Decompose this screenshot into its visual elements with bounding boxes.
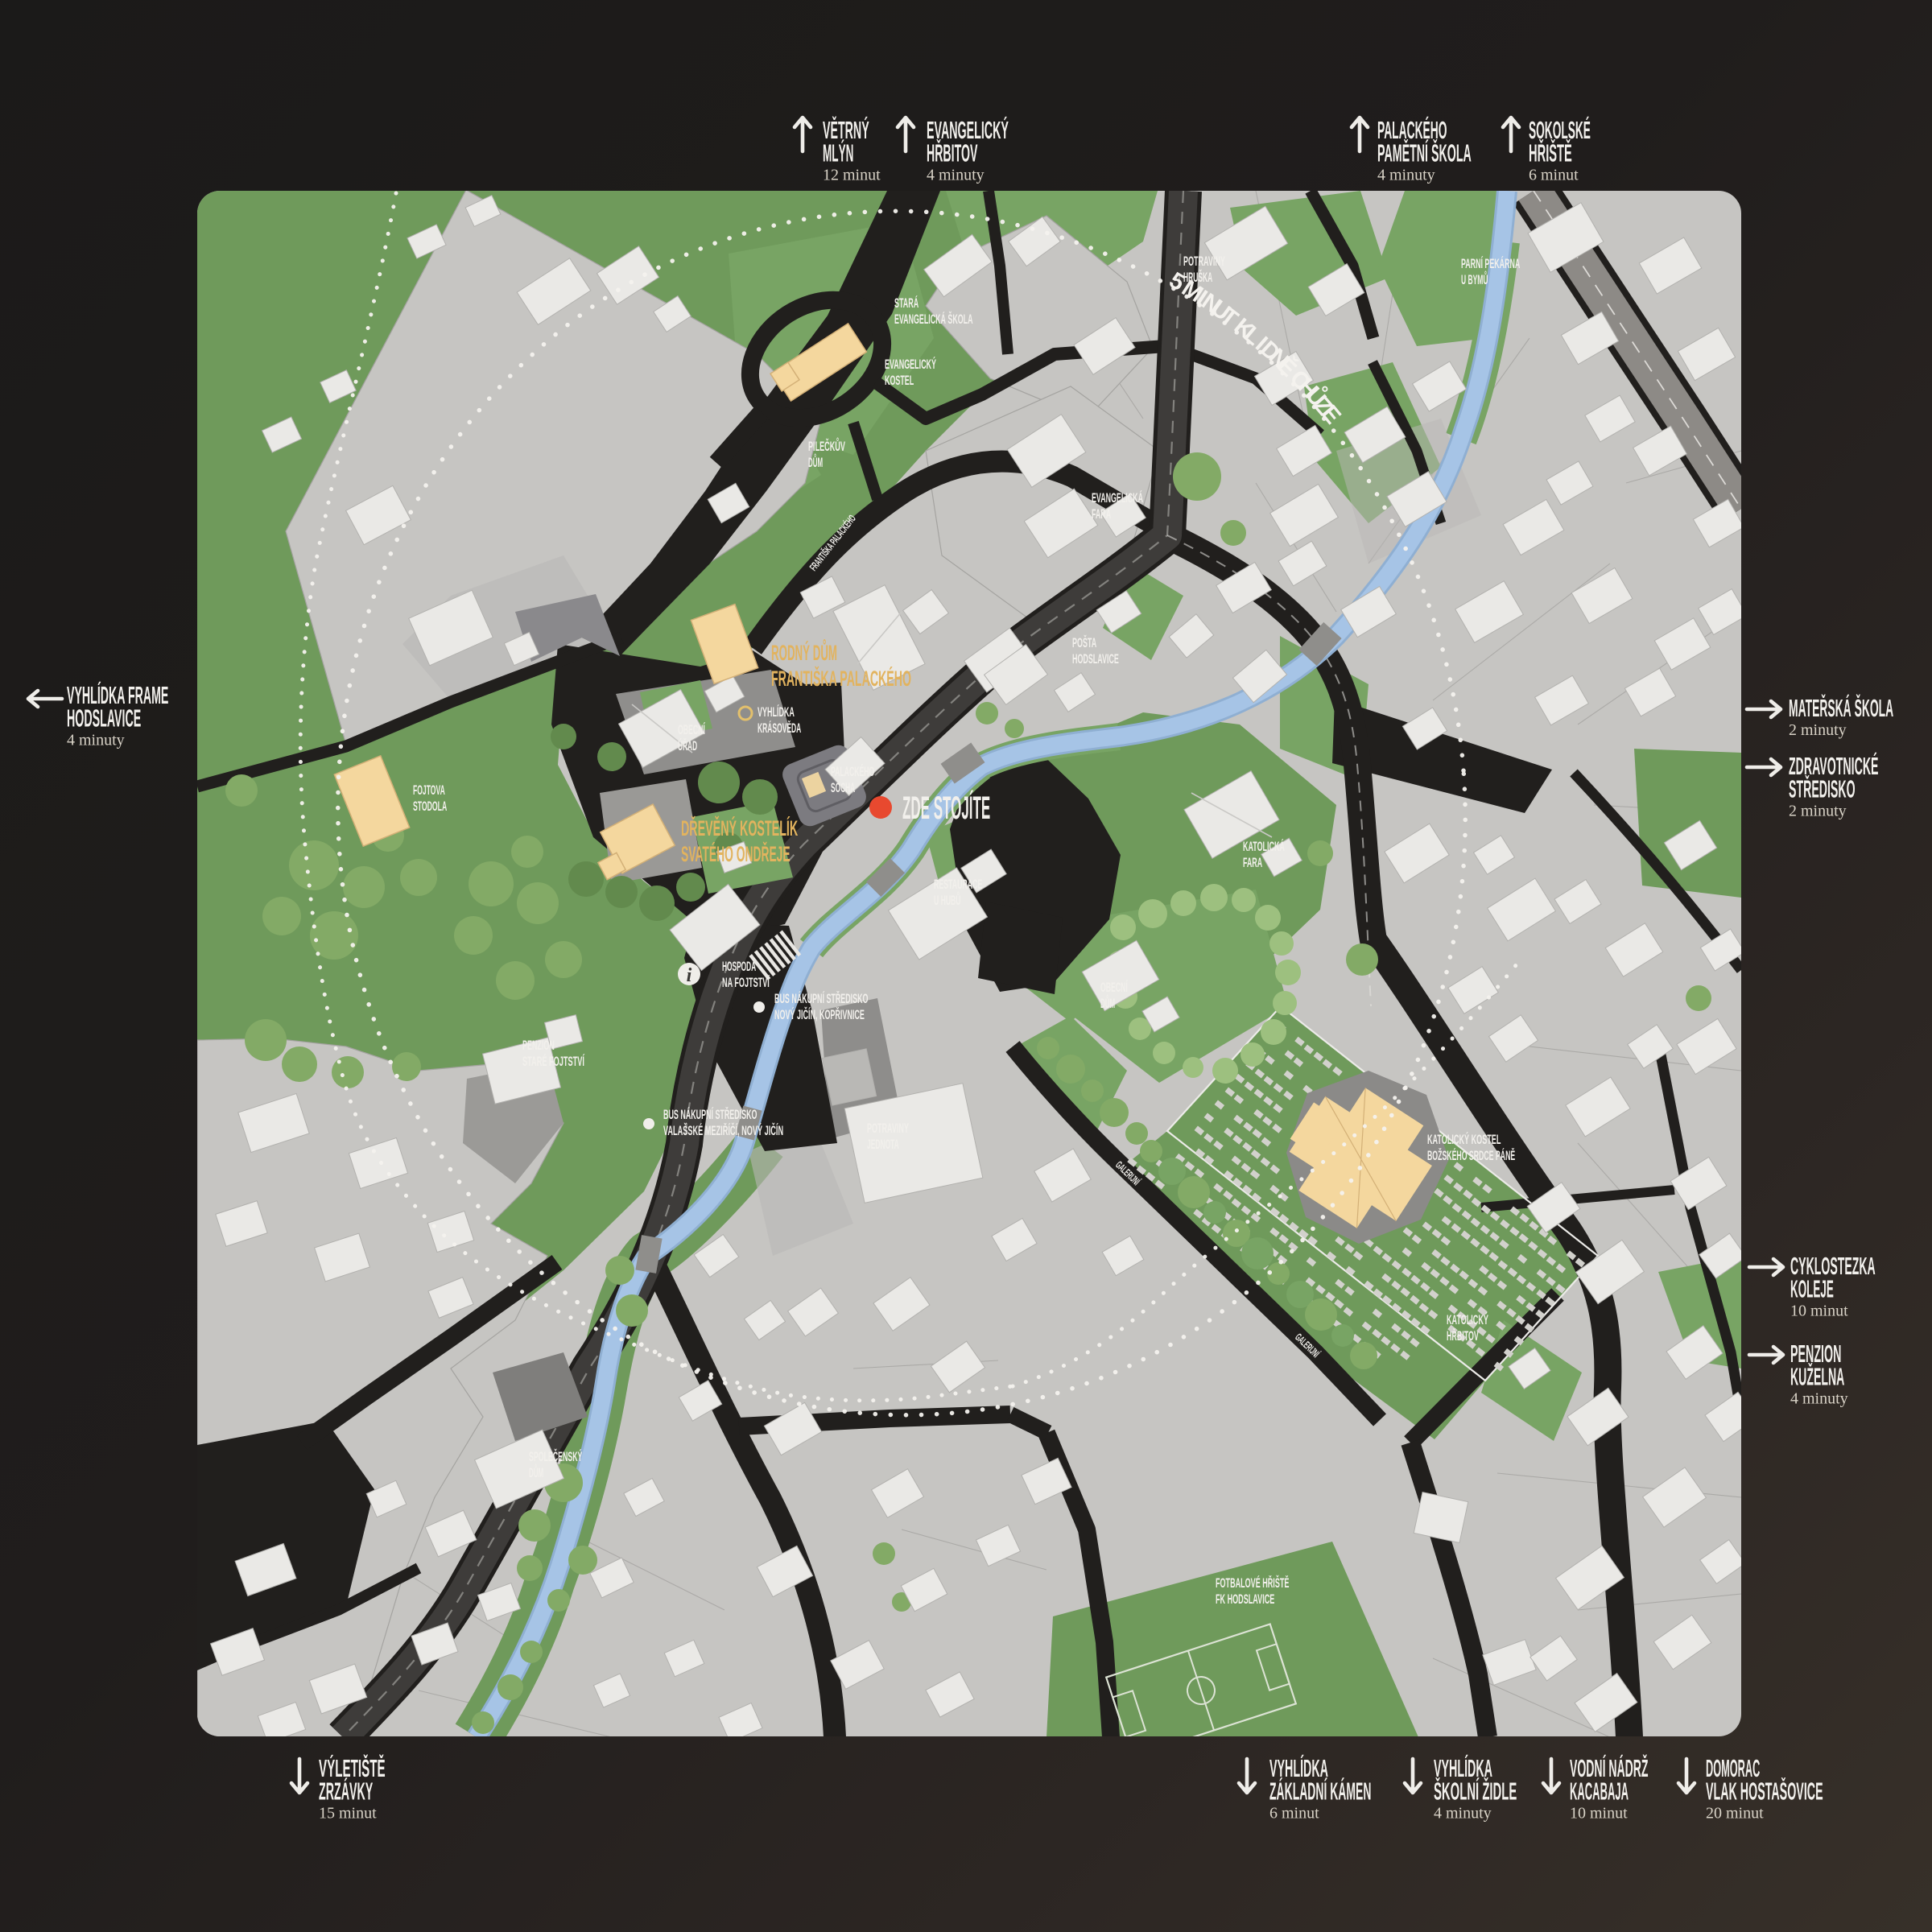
svg-text:6 minut: 6 minut bbox=[1529, 167, 1579, 184]
svg-text:HŘIŠTĚ: HŘIŠTĚ bbox=[1529, 138, 1572, 167]
svg-text:MLÝN: MLÝN bbox=[823, 139, 853, 167]
svg-text:ŠKOLNÍ ŽIDLE: ŠKOLNÍ ŽIDLE bbox=[1434, 1777, 1517, 1806]
svg-text:RESTAURACE: RESTAURACE bbox=[934, 877, 982, 892]
svg-text:12 minut: 12 minut bbox=[823, 167, 881, 184]
svg-text:PENZION: PENZION bbox=[522, 1038, 555, 1053]
svg-text:U BYMŮ: U BYMŮ bbox=[1461, 271, 1488, 287]
svg-text:POTRAVINY: POTRAVINY bbox=[867, 1121, 909, 1136]
svg-text:STARÉ FOJTSTVÍ: STARÉ FOJTSTVÍ bbox=[522, 1054, 585, 1069]
svg-text:DŮM: DŮM bbox=[529, 1464, 543, 1480]
svg-text:KACABAJA: KACABAJA bbox=[1570, 1777, 1629, 1806]
svg-text:PILEČKŮV: PILEČKŮV bbox=[808, 438, 845, 454]
svg-text:ZDE STOJÍTE: ZDE STOJÍTE bbox=[902, 790, 990, 826]
svg-text:KATOLICKÝ KOSTEL: KATOLICKÝ KOSTEL bbox=[1427, 1132, 1501, 1147]
svg-text:FOJTOVA: FOJTOVA bbox=[413, 782, 445, 798]
svg-text:i: i bbox=[687, 965, 692, 986]
svg-text:6 minut: 6 minut bbox=[1269, 1805, 1319, 1823]
svg-text:HŘBITOV: HŘBITOV bbox=[1447, 1328, 1479, 1344]
svg-text:2 minuty: 2 minuty bbox=[1789, 803, 1847, 820]
svg-text:STODOLA: STODOLA bbox=[413, 799, 447, 814]
svg-text:MATEŘSKÁ ŠKOLA: MATEŘSKÁ ŠKOLA bbox=[1789, 693, 1893, 722]
svg-text:POŠTA: POŠTA bbox=[1072, 635, 1096, 650]
svg-text:BOŽSKÉHO SRDCE PÁNĚ: BOŽSKÉHO SRDCE PÁNĚ bbox=[1427, 1148, 1515, 1163]
svg-text:KUŽELNA: KUŽELNA bbox=[1790, 1362, 1844, 1391]
svg-text:ÚŘAD: ÚŘAD bbox=[678, 738, 697, 753]
svg-text:EVANGELICKÁ ŠKOLA: EVANGELICKÁ ŠKOLA bbox=[894, 312, 973, 327]
svg-text:KATOLICKÝ: KATOLICKÝ bbox=[1447, 1312, 1488, 1327]
svg-text:PAMĚTNÍ ŠKOLA: PAMĚTNÍ ŠKOLA bbox=[1377, 138, 1472, 167]
svg-text:15 minut: 15 minut bbox=[319, 1805, 377, 1823]
svg-text:DŮM: DŮM bbox=[1100, 995, 1115, 1011]
svg-text:ZÁKLADNÍ KÁMEN: ZÁKLADNÍ KÁMEN bbox=[1269, 1777, 1371, 1806]
svg-text:DŮM: DŮM bbox=[808, 454, 823, 470]
svg-text:HŘBITOV: HŘBITOV bbox=[927, 138, 978, 167]
svg-text:EVANGELICKÝ: EVANGELICKÝ bbox=[885, 357, 936, 372]
svg-text:VYHLÍDKA: VYHLÍDKA bbox=[758, 704, 795, 720]
svg-text:KOSTEL: KOSTEL bbox=[885, 373, 914, 388]
svg-text:FARA: FARA bbox=[1092, 506, 1111, 522]
svg-text:OBECNÍ: OBECNÍ bbox=[678, 722, 705, 737]
svg-text:KOLEJE: KOLEJE bbox=[1790, 1275, 1834, 1303]
svg-text:4 minuty: 4 minuty bbox=[1790, 1390, 1848, 1408]
svg-text:HODSLAVICE: HODSLAVICE bbox=[1072, 651, 1119, 667]
svg-text:NA FOJTSTVÍ: NA FOJTSTVÍ bbox=[722, 975, 770, 990]
svg-text:BUS NÁKUPNÍ STŘEDISKO: BUS NÁKUPNÍ STŘEDISKO bbox=[663, 1107, 758, 1122]
svg-text:HOSPODA: HOSPODA bbox=[722, 959, 756, 974]
svg-text:4 minuty: 4 minuty bbox=[1434, 1805, 1492, 1823]
svg-text:RODNÝ DŮM: RODNÝ DŮM bbox=[771, 638, 837, 665]
svg-text:4 minuty: 4 minuty bbox=[67, 732, 125, 749]
svg-text:PALACKÉHO: PALACKÉHO bbox=[831, 764, 874, 779]
svg-text:FARA: FARA bbox=[1243, 855, 1262, 870]
svg-text:STARÁ: STARÁ bbox=[894, 295, 919, 311]
svg-text:KATOLICKÁ: KATOLICKÁ bbox=[1243, 839, 1285, 854]
svg-text:VLAK HOSTAŠOVICE: VLAK HOSTAŠOVICE bbox=[1706, 1777, 1823, 1806]
svg-text:NOVÝ JIČÍN, KOPŘIVNICE: NOVÝ JIČÍN, KOPŘIVNICE bbox=[774, 1007, 865, 1022]
svg-text:HODSLAVICE: HODSLAVICE bbox=[67, 704, 141, 733]
svg-text:ZRZÁVKY: ZRZÁVKY bbox=[319, 1777, 373, 1806]
svg-text:PARNÍ PEKÁRNA: PARNÍ PEKÁRNA bbox=[1461, 256, 1520, 271]
svg-text:FRANTIŠKA PALACKÉHO: FRANTIŠKA PALACKÉHO bbox=[771, 666, 911, 691]
svg-text:10 minut: 10 minut bbox=[1570, 1805, 1628, 1823]
svg-text:KRÁSOVĚDA: KRÁSOVĚDA bbox=[758, 720, 801, 736]
svg-text:FOTBALOVÉ HŘIŠTĚ: FOTBALOVÉ HŘIŠTĚ bbox=[1216, 1575, 1289, 1591]
svg-text:20 minut: 20 minut bbox=[1706, 1805, 1764, 1823]
svg-text:JEDNOTA: JEDNOTA bbox=[867, 1137, 899, 1152]
svg-text:BUS NÁKUPNÍ STŘEDISKO: BUS NÁKUPNÍ STŘEDISKO bbox=[774, 991, 869, 1006]
svg-text:EVANGELICKÁ: EVANGELICKÁ bbox=[1092, 490, 1143, 506]
svg-text:4 minuty: 4 minuty bbox=[1377, 167, 1435, 184]
svg-text:2 minuty: 2 minuty bbox=[1789, 721, 1847, 739]
svg-text:FK HODSLAVICE: FK HODSLAVICE bbox=[1216, 1591, 1274, 1607]
svg-text:STŘEDISKO: STŘEDISKO bbox=[1789, 774, 1856, 803]
svg-text:VALAŠSKÉ MEZIŘÍČÍ, NOVÝ JIČÍN: VALAŠSKÉ MEZIŘÍČÍ, NOVÝ JIČÍN bbox=[663, 1123, 783, 1138]
svg-text:SOCHA: SOCHA bbox=[831, 780, 855, 795]
svg-text:U HUBŮ: U HUBŮ bbox=[934, 892, 961, 908]
svg-text:SPOLEČENSKÝ: SPOLEČENSKÝ bbox=[529, 1449, 583, 1464]
svg-text:SVATÉHO ONDŘEJE: SVATÉHO ONDŘEJE bbox=[681, 841, 791, 866]
svg-text:POTRAVINY: POTRAVINY bbox=[1183, 254, 1225, 269]
svg-text:10 minut: 10 minut bbox=[1790, 1302, 1848, 1320]
svg-text:HRUŠKA: HRUŠKA bbox=[1183, 270, 1212, 285]
svg-text:OBECNÍ: OBECNÍ bbox=[1100, 980, 1128, 995]
svg-text:4 minuty: 4 minuty bbox=[927, 167, 985, 184]
svg-text:DŘEVĚNÝ KOSTELÍK: DŘEVĚNÝ KOSTELÍK bbox=[681, 815, 798, 840]
